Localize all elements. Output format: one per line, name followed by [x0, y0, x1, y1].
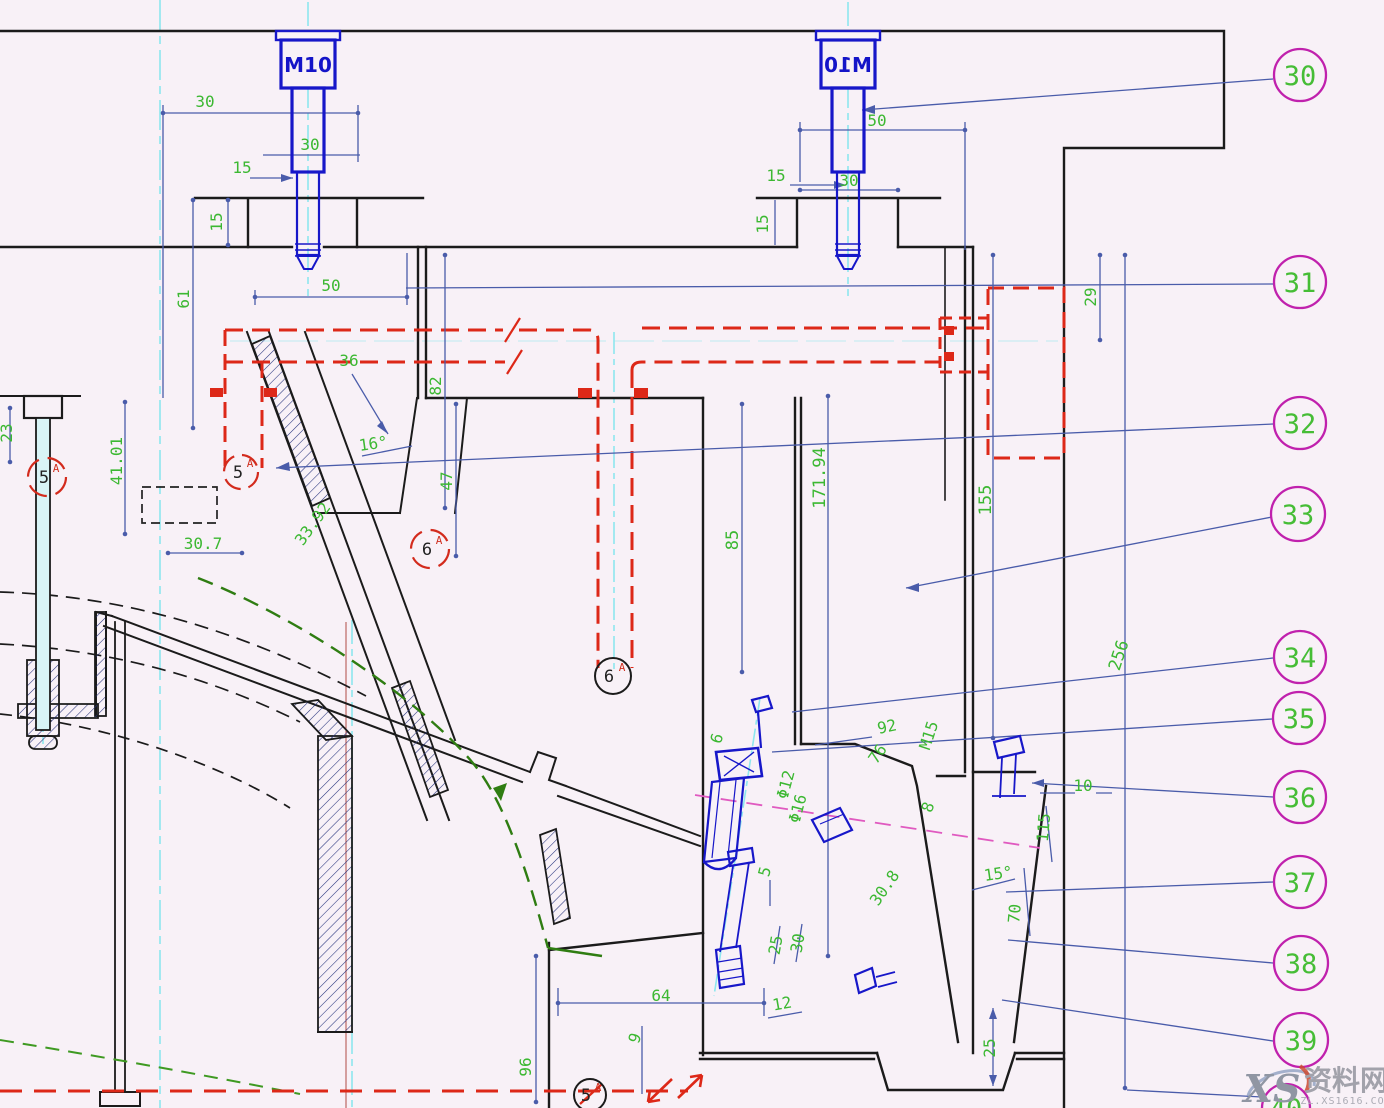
dim-50-right: 50 [867, 111, 886, 130]
dim-23: 23 [0, 423, 16, 442]
svg-text:5: 5 [233, 463, 243, 483]
watermark-logo: XS [1242, 1066, 1301, 1108]
dim-30-7: 30.7 [184, 534, 223, 553]
dim-92: 92 [875, 715, 898, 738]
svg-text:A: A [53, 462, 60, 475]
dim-85: 85 [723, 530, 743, 550]
dim-50-left: 50 [321, 276, 340, 295]
dim-16deg: 16° [358, 432, 389, 455]
svg-text:33: 33 [1282, 500, 1315, 531]
dim-115: 115 [1033, 812, 1054, 842]
svg-text:31: 31 [1284, 268, 1317, 299]
dim-15deg: 15° [983, 862, 1014, 885]
svg-text:A: A [595, 1081, 602, 1094]
dim-171-94: 171.94 [810, 447, 830, 508]
dim-82: 82 [426, 376, 445, 395]
svg-text:A: A [619, 661, 626, 674]
dim-29: 29 [1081, 287, 1100, 306]
cad-drawing-canvas: M10 M10 30 30 15 15 61 50 [0, 0, 1384, 1108]
dim-30-bolt-left: 30 [300, 135, 319, 154]
svg-text:6: 6 [422, 540, 432, 560]
mold-section-drawing: M10 M10 30 30 15 15 61 50 [0, 0, 1384, 1108]
dim-30-bolt-right: 30 [839, 171, 858, 190]
svg-text:38: 38 [1285, 949, 1318, 980]
dim-70: 70 [1004, 903, 1025, 924]
svg-text:A: A [436, 534, 443, 547]
dim-15v-left: 15 [207, 212, 226, 231]
watermark-site-name: 资料网 [1304, 1064, 1384, 1097]
svg-text:37: 37 [1284, 868, 1317, 899]
dim-41-01: 41.01 [107, 437, 126, 485]
dim-25-rot: 25 [765, 934, 787, 956]
svg-text:5: 5 [39, 468, 49, 488]
dim-96: 96 [516, 1057, 535, 1076]
dim-47: 47 [437, 471, 456, 490]
drawing-background [0, 0, 1384, 1108]
dim-10: 10 [1073, 776, 1092, 795]
dim-30-top-left: 30 [195, 92, 214, 111]
dim-15-left: 15 [232, 158, 251, 177]
dim-25-vert: 25 [980, 1038, 999, 1057]
svg-text:30: 30 [1284, 61, 1317, 92]
svg-text:A: A [247, 457, 254, 470]
svg-text:34: 34 [1284, 643, 1317, 674]
svg-text:5: 5 [581, 1086, 591, 1106]
bolt-label-left: M10 [284, 53, 332, 77]
svg-text:36: 36 [1284, 783, 1317, 814]
bolt-label-right: M10 [824, 53, 872, 77]
dim-15-right: 15 [766, 166, 785, 185]
dim-36: 36 [339, 351, 358, 370]
dim-15v-right: 15 [753, 214, 772, 233]
dim-12: 12 [771, 993, 793, 1015]
watermark: XS 资料网 ZL.XS1616.COM [1242, 1064, 1384, 1108]
svg-text:39: 39 [1285, 1026, 1318, 1057]
svg-text:35: 35 [1283, 704, 1316, 735]
dim-64: 64 [651, 986, 670, 1005]
svg-text:6: 6 [604, 667, 614, 687]
watermark-domain: ZL.XS1616.COM [1300, 1096, 1384, 1107]
svg-text:32: 32 [1284, 409, 1317, 440]
dim-61: 61 [174, 289, 193, 308]
dim-30-rot: 30 [787, 932, 809, 954]
dim-155: 155 [976, 485, 996, 516]
